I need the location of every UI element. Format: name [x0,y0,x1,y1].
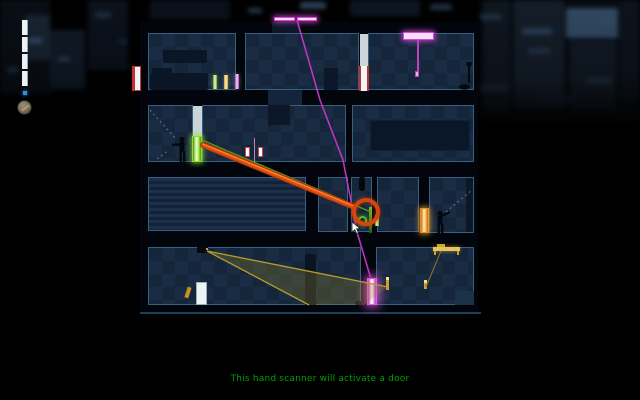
jump-meter-segment [22,20,28,35]
entry-door[interactable] [132,66,141,91]
room-top-middle [245,33,359,90]
door-shaft-f1 [360,34,368,66]
ceiling-scanner-dot [415,71,419,77]
fixture-leg [434,251,436,255]
yellow-pole-2[interactable] [424,280,427,289]
light-tube-orange[interactable] [224,75,228,89]
window-right [455,291,474,305]
jump-meter-segment [22,71,28,86]
pink-door-line [254,138,255,163]
dark-doorway-f1 [324,68,338,90]
game-screen: { "game": { "tooltip": "This hand scanne… [0,0,640,400]
ceiling-scanner-line [417,40,419,72]
clock-hand [21,105,30,112]
dark-doorway-f4 [305,254,316,305]
ceiling-light-fixture[interactable] [433,247,460,251]
yellow-pole-1[interactable] [386,277,389,290]
room-f3-shaft [318,177,348,232]
orange-door[interactable] [420,208,429,233]
indicator-dot [23,91,27,95]
clock-gadget-icon[interactable] [17,100,32,115]
room-f3-right-dark [466,178,473,232]
building-base-line [140,312,481,314]
debris [355,301,367,305]
roof-light-bar[interactable] [297,17,317,21]
light-tube-magenta[interactable] [235,74,239,89]
light-tube-green[interactable] [213,75,217,89]
player-character [356,174,368,193]
guard-1 [170,136,192,162]
roof-light-bar[interactable] [274,17,295,21]
dark-doorway-f2 [268,105,290,125]
room-f4-left [148,247,361,305]
door-shaft-f2 [193,106,202,137]
office-desk [150,73,208,90]
magenta-door[interactable] [367,278,377,305]
office-art [163,50,207,63]
room-f3-middle [377,177,419,232]
mouse-cursor [351,221,361,235]
room-f3-striped [148,177,306,231]
roof-housing [272,22,300,33]
jump-meter-segment [22,54,28,69]
fixture-leg [457,251,459,255]
green-door[interactable] [192,136,202,162]
white-door[interactable] [196,282,207,305]
jump-meter-segment [22,37,28,52]
floor-lamp-silhouette [458,62,476,92]
wall-screen [370,120,470,151]
ceiling-scanner-bar[interactable] [403,32,434,40]
stairwell-opening [268,90,302,106]
wall-sconce-left[interactable] [245,147,250,157]
tooltip-text: This hand scanner will activate a door [0,374,640,384]
wall-sconce-right[interactable] [258,147,263,157]
guard-2 [432,209,456,233]
camera-lens [206,248,208,250]
upper-red-door[interactable] [359,66,369,91]
